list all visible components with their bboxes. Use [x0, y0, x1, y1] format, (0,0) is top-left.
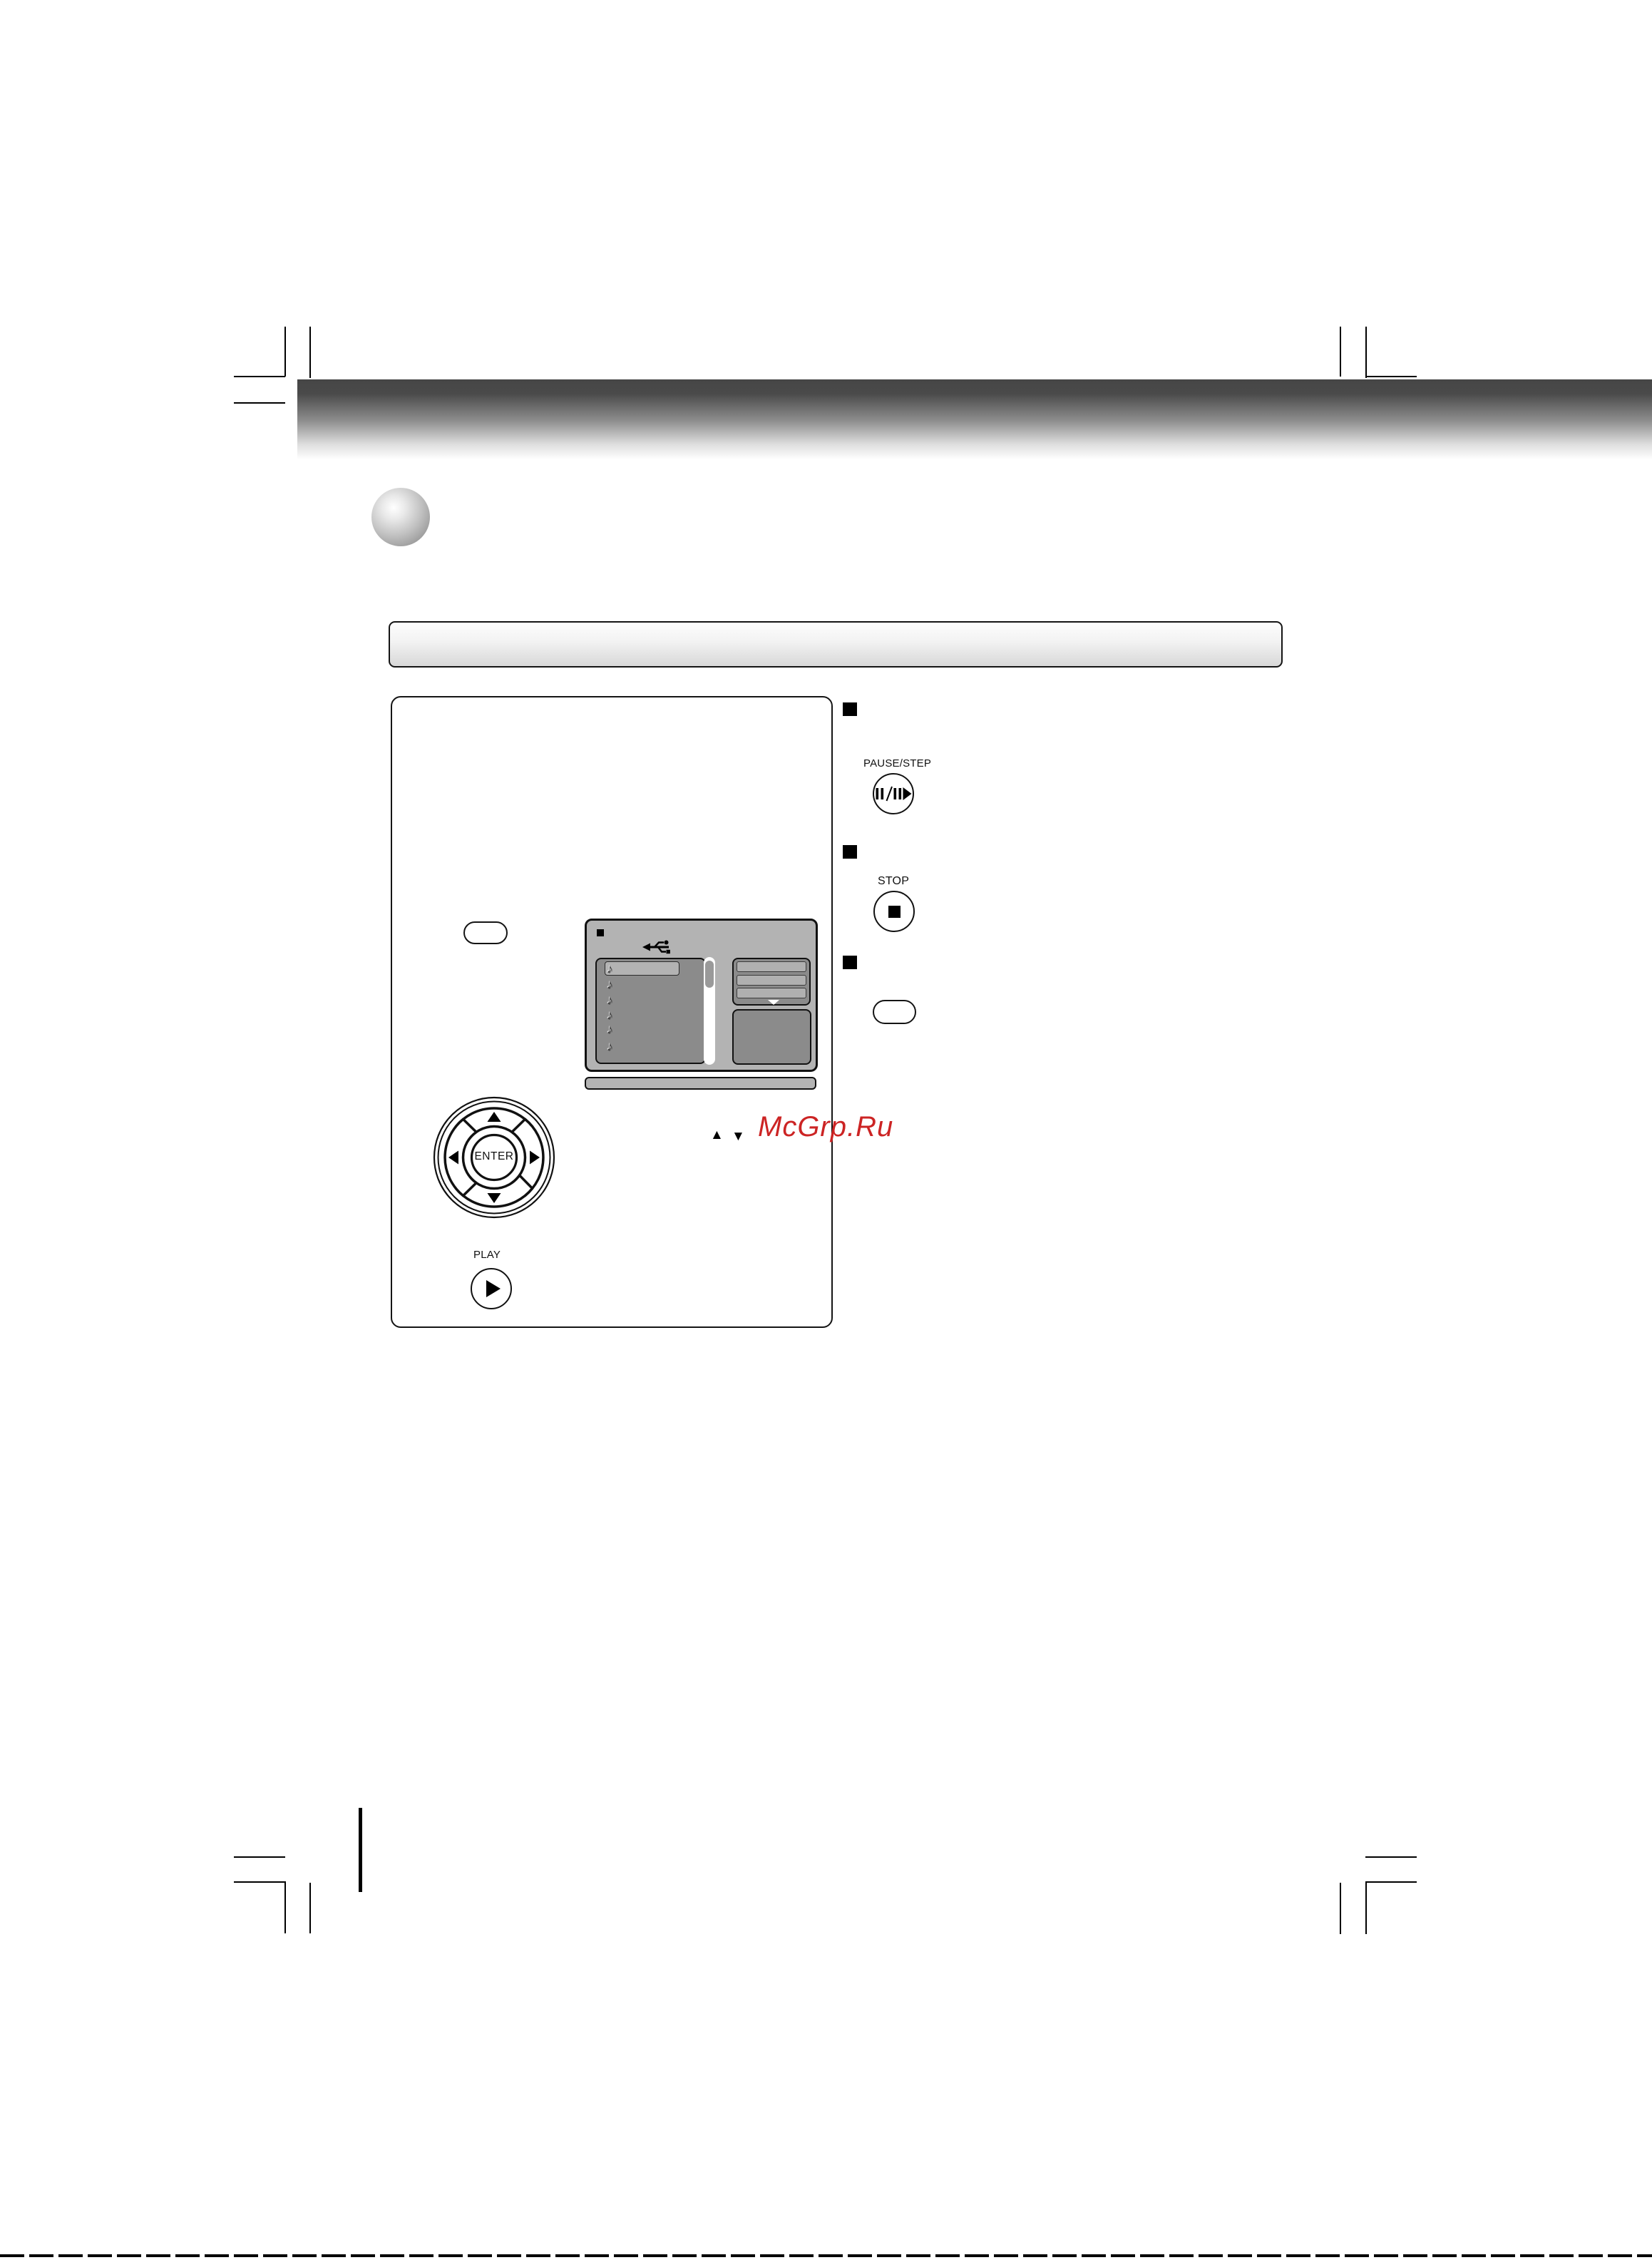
crop-mark	[284, 1881, 286, 1933]
crop-mark	[234, 402, 285, 404]
menu-item-bar	[737, 988, 806, 998]
crop-mark	[1365, 1881, 1367, 1934]
stop-button-label: STOP	[878, 875, 909, 888]
remote-oval-button	[463, 921, 508, 944]
menu-item-bar	[737, 961, 806, 972]
bottom-trim-dashed-line	[0, 2254, 1652, 2257]
crop-mark	[1365, 327, 1367, 378]
crop-mark	[309, 1883, 311, 1933]
music-note-icon: ♪	[607, 978, 621, 992]
play-button	[471, 1268, 512, 1309]
crop-mark	[309, 327, 311, 378]
stop-button	[873, 891, 915, 932]
stop-icon	[888, 906, 901, 918]
crop-mark	[1365, 1856, 1417, 1858]
menu-panel	[732, 958, 811, 1006]
up-triangle-symbol: ▲	[710, 1128, 724, 1143]
play-icon	[486, 1280, 501, 1297]
registration-bar	[359, 1808, 362, 1892]
usb-icon	[642, 939, 674, 956]
page-header-gradient-band	[297, 379, 1652, 459]
crop-mark	[234, 1856, 285, 1858]
screen-status-bar	[585, 1077, 816, 1090]
play-button-label: PLAY	[473, 1249, 501, 1261]
menu-dropdown-triangle	[768, 1000, 779, 1005]
music-note-icon: ♪	[607, 1040, 621, 1054]
pause-step-button	[873, 773, 914, 814]
music-note-icon: ♪	[607, 1008, 621, 1023]
section-title-bar	[389, 621, 1283, 668]
tv-screen-illustration: ♪ ♪ ♪ ♪ ♪ ♪	[585, 919, 818, 1072]
manual-page: ♪ ♪ ♪ ♪ ♪ ♪	[0, 0, 1652, 2260]
remote-oval-button	[873, 1000, 916, 1024]
music-note-icon: ♪	[607, 962, 621, 976]
crop-mark	[234, 376, 285, 377]
menu-item-bar	[737, 975, 806, 986]
crop-mark	[1340, 327, 1341, 377]
crop-mark	[284, 327, 286, 377]
info-panel	[732, 1009, 811, 1065]
watermark-text: McGrp.Ru	[758, 1111, 893, 1143]
down-triangle-symbol: ▼	[732, 1129, 745, 1145]
step-bullet	[843, 845, 857, 859]
crop-mark	[234, 1881, 285, 1883]
page-number-sphere	[371, 488, 430, 546]
scrollbar-thumb	[705, 961, 714, 988]
step-bullet	[843, 702, 857, 716]
music-note-icon: ♪	[607, 993, 621, 1008]
pause-step-icon	[875, 786, 912, 802]
scrollbar	[704, 957, 715, 1065]
pause-step-button-label: PAUSE/STEP	[863, 757, 931, 769]
screen-bullet-square	[597, 929, 604, 936]
crop-mark	[1365, 1881, 1417, 1883]
step-bullet	[843, 956, 857, 969]
crop-mark	[1365, 376, 1417, 377]
music-note-icon: ♪	[607, 1023, 621, 1037]
crop-mark	[1340, 1883, 1341, 1934]
enter-button-label: ENTER	[451, 1150, 537, 1163]
file-list-panel: ♪ ♪ ♪ ♪ ♪ ♪	[595, 958, 706, 1064]
